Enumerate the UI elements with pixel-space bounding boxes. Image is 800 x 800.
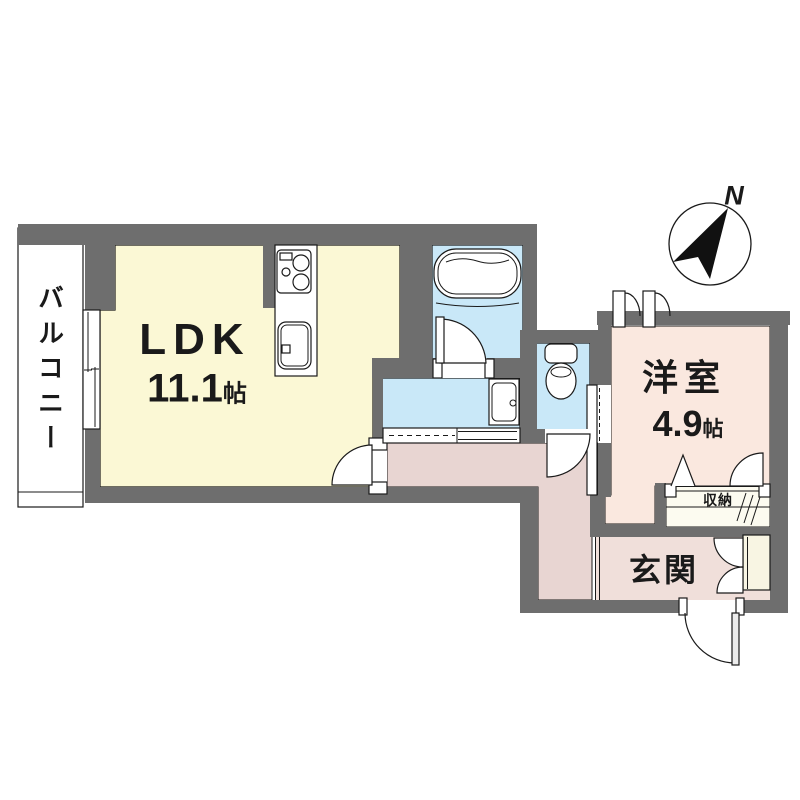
floor-plan: バルコニー LDK 11.1帖 洋室 4.9帖 玄関 収納 N bbox=[0, 0, 800, 800]
compass bbox=[669, 203, 751, 285]
washbasin-icon bbox=[489, 379, 519, 425]
closet-label: 収納 bbox=[703, 490, 733, 510]
western-room-label: 洋室 bbox=[642, 349, 726, 401]
kitchen-sink-icon bbox=[278, 322, 311, 369]
western-room-size-value: 4.9 bbox=[652, 403, 702, 444]
compass-north-label: N bbox=[724, 181, 744, 212]
western-room-size-unit: 帖 bbox=[703, 418, 724, 441]
casement-window-icon bbox=[643, 291, 655, 327]
laundry-folding-door-icon bbox=[383, 428, 520, 443]
ldk-size-value: 11.1 bbox=[147, 367, 223, 411]
stove-burner-icon bbox=[277, 250, 311, 293]
western-room-size-label: 4.9帖 bbox=[652, 403, 723, 445]
ldk-size-unit: 帖 bbox=[223, 381, 247, 408]
balcony-label: バルコニー bbox=[32, 284, 69, 459]
casement-window-icon bbox=[613, 291, 625, 327]
ldk-size-label: 11.1帖 bbox=[147, 367, 247, 412]
entrance-door-swing-icon bbox=[685, 613, 735, 663]
entrance-label: 玄関 bbox=[629, 545, 699, 591]
toilet-icon bbox=[545, 344, 577, 399]
ldk-label: LDK bbox=[139, 315, 250, 365]
entrance-door-leaf bbox=[732, 613, 739, 665]
